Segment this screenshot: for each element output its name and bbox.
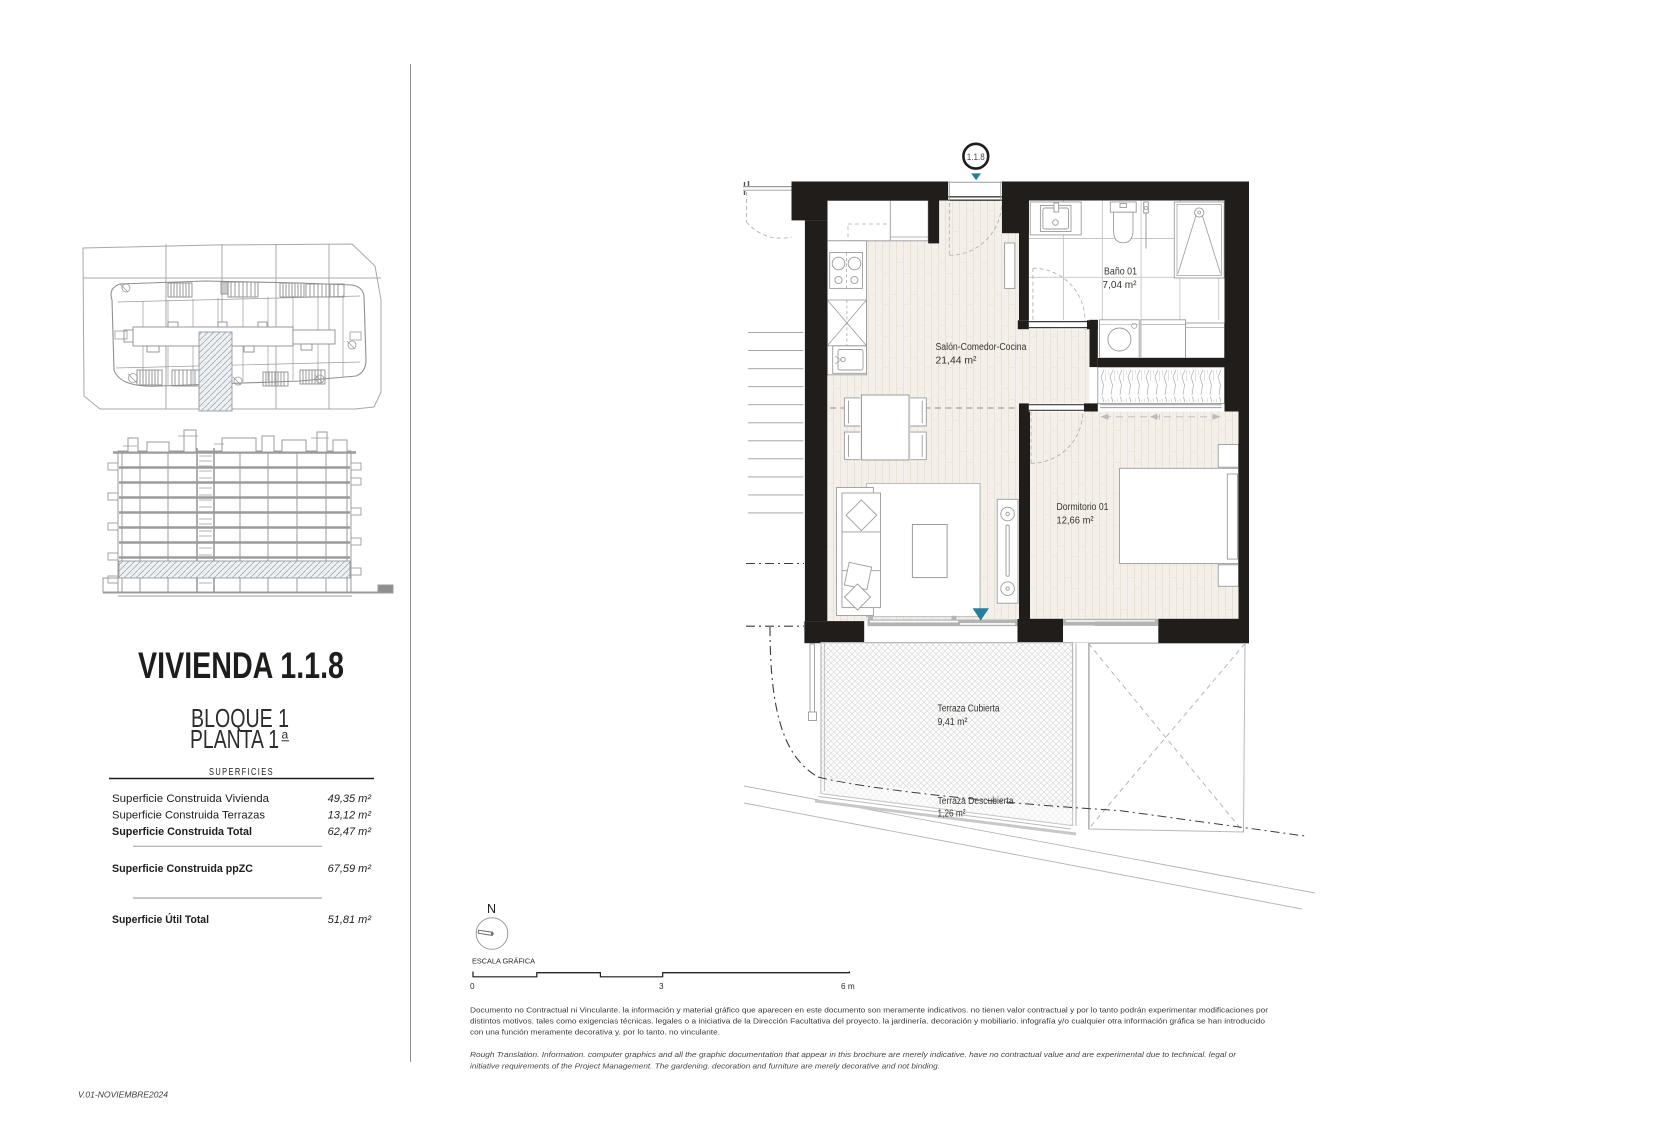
svg-text:62,47 m²: 62,47 m² xyxy=(328,826,372,838)
svg-text:3: 3 xyxy=(659,982,664,991)
svg-text:con una función meramente deco: con una función meramente decorativa y. … xyxy=(470,1028,720,1037)
svg-text:Documento no Contractual ni Vi: Documento no Contractual ni Vinculante. … xyxy=(470,1006,1269,1015)
svg-text:Rough Translation. Information: Rough Translation. Information. computer… xyxy=(470,1050,1237,1059)
svg-text:Superficie Construida Total: Superficie Construida Total xyxy=(112,826,252,838)
svg-text:9,41 m²: 9,41 m² xyxy=(938,717,969,728)
svg-text:0: 0 xyxy=(470,982,475,991)
svg-text:12,66 m²: 12,66 m² xyxy=(1057,516,1095,527)
svg-text:Superficie Construida Vivienda: Superficie Construida Vivienda xyxy=(112,793,270,805)
svg-text:7,04 m²: 7,04 m² xyxy=(1103,280,1138,291)
svg-text:a: a xyxy=(282,728,289,742)
svg-text:distintos motivos. tales como: distintos motivos. tales como exigencias… xyxy=(470,1017,1265,1026)
svg-text:PLANTA 1: PLANTA 1 xyxy=(190,724,279,754)
svg-text:21,44 m²: 21,44 m² xyxy=(936,356,978,367)
svg-text:Salón-Comedor-Cocina: Salón-Comedor-Cocina xyxy=(936,342,1027,353)
svg-text:Terraza Descubierta: Terraza Descubierta xyxy=(938,796,1014,807)
svg-text:VIVIENDA 1.1.8: VIVIENDA 1.1.8 xyxy=(138,645,344,686)
svg-text:initiative requirements of the: initiative requirements of the Project M… xyxy=(470,1062,940,1071)
svg-text:V.01-NOVIEMBRE2024: V.01-NOVIEMBRE2024 xyxy=(78,1091,169,1100)
svg-text:6 m: 6 m xyxy=(841,982,855,991)
svg-text:Terraza Cubierta: Terraza Cubierta xyxy=(938,704,1000,715)
svg-text:Superficie Construida ppZC: Superficie Construida ppZC xyxy=(112,863,253,875)
svg-text:51,81 m²: 51,81 m² xyxy=(328,914,372,926)
svg-text:Superficie Construida Terrazas: Superficie Construida Terrazas xyxy=(112,810,266,822)
svg-text:1,26 m²: 1,26 m² xyxy=(938,809,967,820)
svg-text:49,35 m²: 49,35 m² xyxy=(328,793,372,805)
svg-text:N: N xyxy=(487,902,496,916)
svg-text:1.1.8: 1.1.8 xyxy=(967,152,985,163)
svg-text:Baño 01: Baño 01 xyxy=(1104,267,1137,278)
svg-text:SUPERFICIES: SUPERFICIES xyxy=(209,766,274,778)
svg-text:ESCALA GRÁFICA: ESCALA GRÁFICA xyxy=(472,957,535,966)
svg-text:67,59 m²: 67,59 m² xyxy=(328,863,372,875)
svg-text:Superficie Útil Total: Superficie Útil Total xyxy=(112,913,209,926)
svg-text:Dormitorio 01: Dormitorio 01 xyxy=(1057,502,1109,513)
svg-text:13,12 m²: 13,12 m² xyxy=(328,810,372,822)
